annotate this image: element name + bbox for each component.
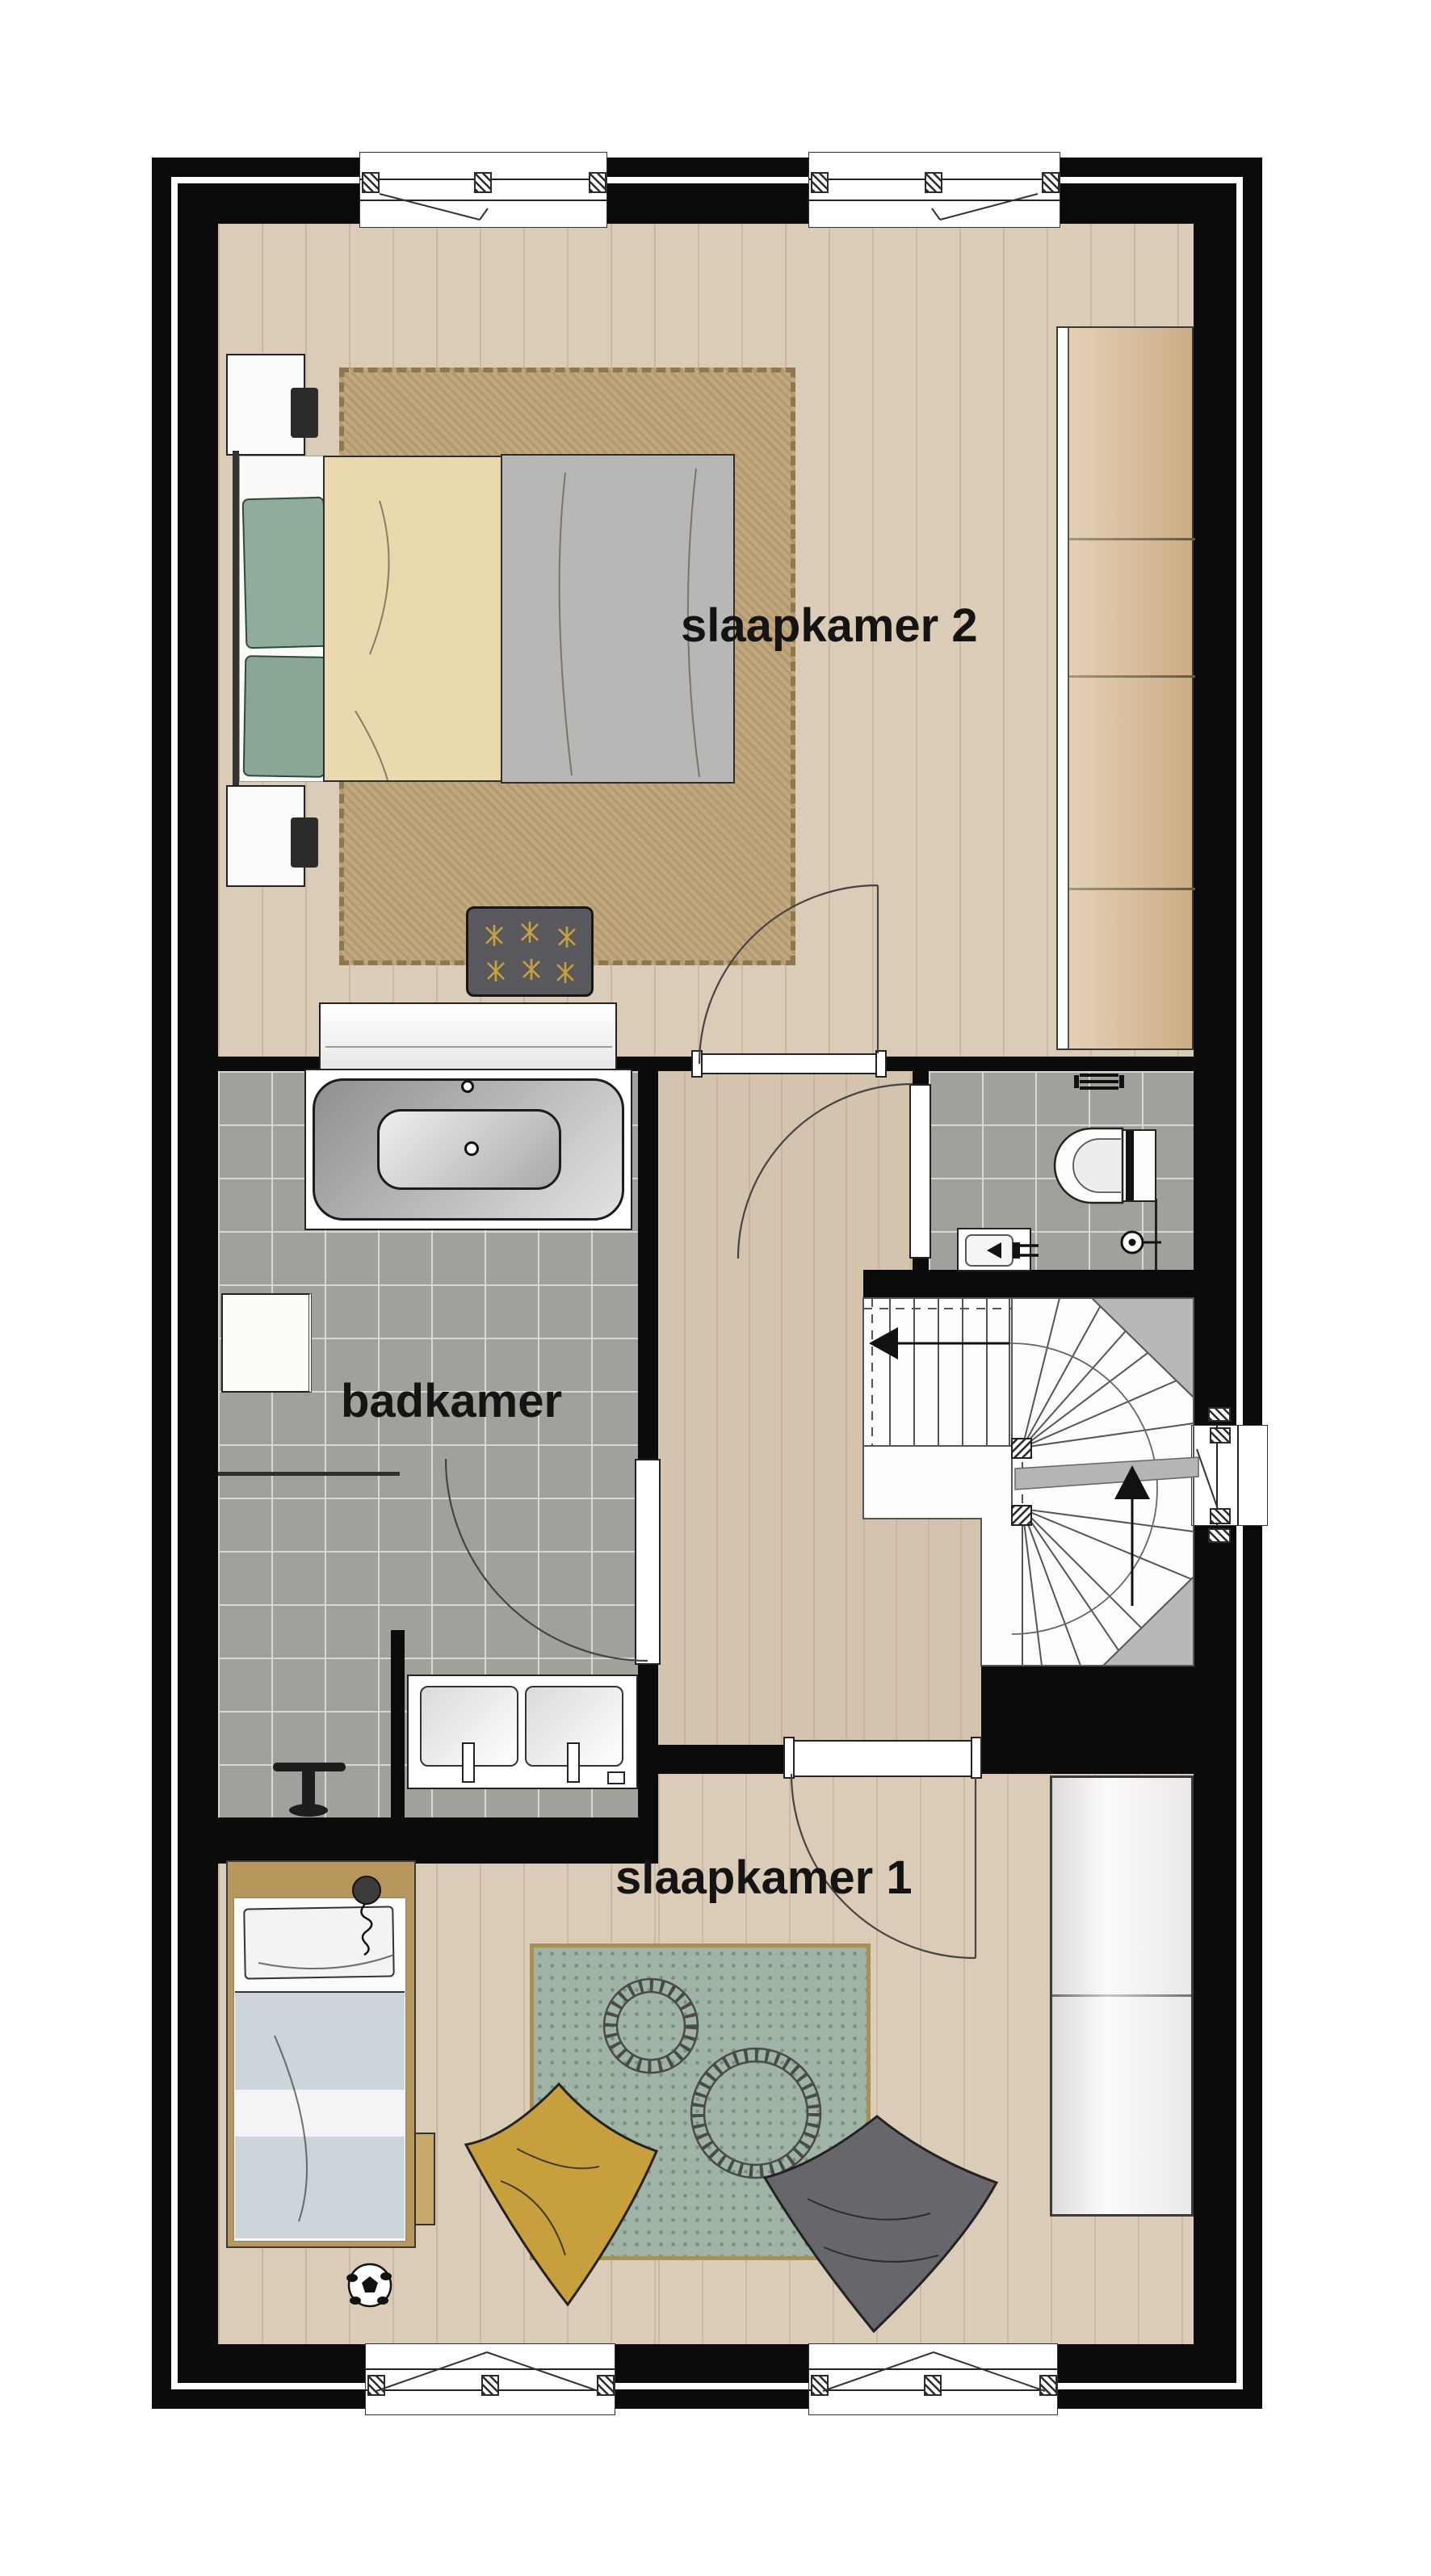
toilet-icon [1055,1128,1123,1203]
bed2-fold-lines [355,469,699,780]
ottoman-buttons [486,922,575,983]
bed1-sheet-lines [258,1955,394,2221]
wc-basin-faucet-icon [987,1242,1039,1259]
label-slaapkamer2: slaapkamer 2 [681,603,978,649]
stair-arrow-up-icon [1114,1465,1150,1606]
arc-badkamer-door [446,1459,648,1661]
stair-newel-post [1012,1439,1031,1458]
stair-corner-top-right [1092,1298,1194,1397]
stair-newel-post [1012,1506,1031,1525]
stair-handrail-band [1015,1457,1198,1490]
arc-bedroom2-door [699,885,878,1064]
pillow-yellow-icon [466,2084,657,2305]
pillow-grey-icon [765,2116,997,2331]
label-slaapkamer1: slaapkamer 1 [615,1855,913,1902]
plan-line-overlay [0,0,1431,2576]
staircase [863,1298,1198,1666]
bed1-headboard-lamp-icon [353,1876,380,1955]
wc-valve-icon [1122,1232,1161,1253]
arc-wc-door [738,1084,913,1259]
soccer-ball-icon [346,2264,392,2306]
window-swing-lines [376,194,1218,2391]
floor-plan-canvas: slaapkamer 2 badkamer slaapkamer 1 [0,0,1431,2576]
label-badkamer: badkamer [341,1378,562,1425]
